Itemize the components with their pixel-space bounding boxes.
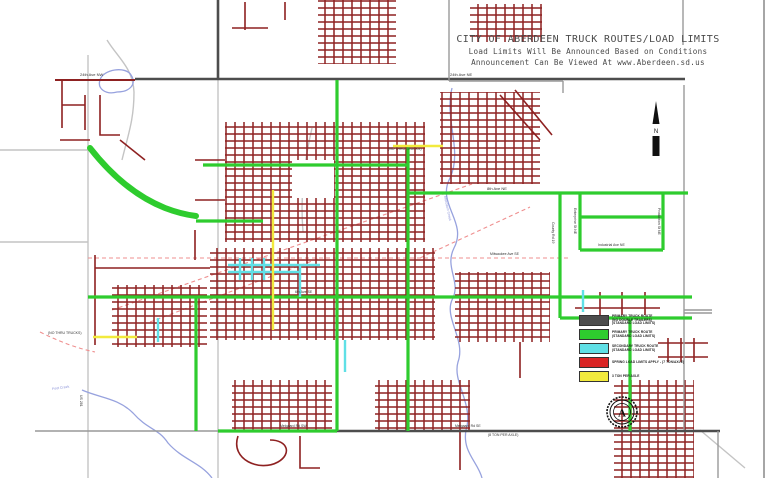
legend-swatch <box>579 357 609 368</box>
north-label: N <box>654 129 658 135</box>
map-title: CITY OF ABERDEEN TRUCK ROUTES/LOAD LIMIT… <box>452 34 724 67</box>
legend-item: PRIMARY TRUCK ROUTE (STANDARD LOAD LIMIT… <box>579 329 729 340</box>
map-label: County Rd 19 <box>551 222 555 243</box>
title-line-3: Announcement Can Be Viewed At www.Aberde… <box>452 58 724 67</box>
map-label: (NO THRU TRUCKS) <box>48 332 82 336</box>
title-block-border <box>449 0 764 478</box>
map-label: 24th Ave NW <box>80 73 103 77</box>
north-arrow: N <box>653 101 660 156</box>
legend-label: 3 TON PER AXLE <box>612 375 639 379</box>
map-label: 8th Ave NE <box>487 187 507 191</box>
map-label: Production St NE <box>657 208 661 235</box>
legend-item: SPRING LOAD LIMITS APPLY - (7 TON/AXLE) <box>579 357 729 368</box>
legend-item: SECONDARY TRUCK ROUTE (STANDARD LOAD LIM… <box>579 343 729 354</box>
map-label: Melgaard Rd SW <box>280 425 307 429</box>
map-label: 24th Ave NE <box>450 73 472 77</box>
legend-swatch <box>579 315 609 326</box>
map-label: (NO THRU TRUCKS) <box>388 148 422 152</box>
map-canvas: N A <box>0 0 768 478</box>
foot-creek <box>82 390 212 478</box>
map-label: 6th Ave SE <box>295 291 312 295</box>
map-label: US 281 <box>79 395 83 407</box>
map-label: Industrial Ave NE <box>598 244 625 248</box>
legend-label: SECONDARY TRUCK ROUTE (STANDARD LOAD LIM… <box>612 345 658 352</box>
map-label: Enterprise St NE <box>573 208 577 234</box>
seal-letter: A <box>618 408 626 420</box>
title-line-2: Load Limits Will Be Announced Based on C… <box>452 47 724 56</box>
legend: PRIMARY TRUCK ROUTE (NO DOUBLE TRAILERS)… <box>579 315 729 382</box>
legend-label: SPRING LOAD LIMITS APPLY - (7 TON/AXLE) <box>612 361 684 365</box>
title-line-1: CITY OF ABERDEEN TRUCK ROUTES/LOAD LIMIT… <box>452 34 724 45</box>
legend-label: PRIMARY TRUCK ROUTE (NO DOUBLE TRAILERS)… <box>612 315 655 326</box>
map-label: (8 TON PER AXLE) <box>488 434 518 438</box>
legend-item: PRIMARY TRUCK ROUTE (NO DOUBLE TRAILERS)… <box>579 315 729 326</box>
map-sheet: N A CITY OF ABERDEEN TRUCK ROUTES/LOAD L… <box>0 0 768 478</box>
map-label: Melgaard Rd SE <box>455 425 481 429</box>
legend-label: PRIMARY TRUCK ROUTE (STANDARD LOAD LIMIT… <box>612 331 655 338</box>
lake <box>99 70 133 93</box>
legend-swatch <box>579 343 609 354</box>
legend-item: 3 TON PER AXLE <box>579 371 729 382</box>
legend-swatch <box>579 371 609 382</box>
red-roads-layer <box>55 0 708 478</box>
map-label: Milwaukee Ave SE <box>490 253 519 257</box>
legend-swatch <box>579 329 609 340</box>
